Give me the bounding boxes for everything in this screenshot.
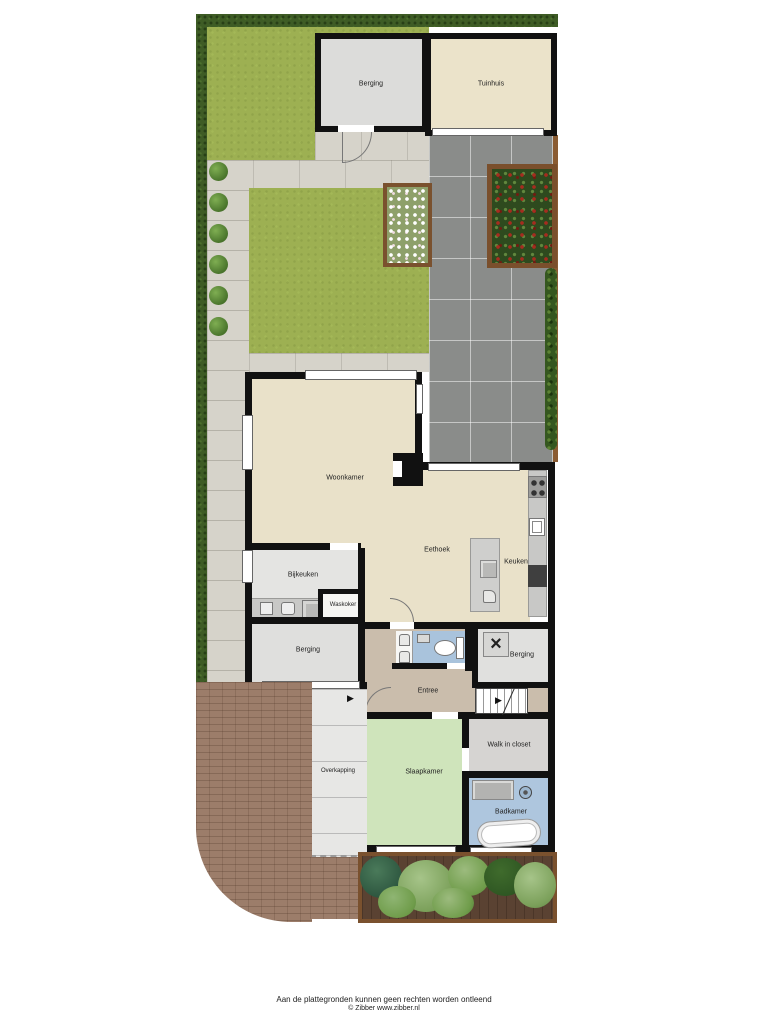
label-keuken: Keuken [504, 559, 528, 566]
window-woonkamer-top [305, 370, 417, 380]
boiler-icon: × [483, 632, 509, 657]
wc-sink-icon [417, 634, 430, 643]
shed-door-opening [338, 125, 374, 132]
vanity-double-sink [472, 780, 514, 800]
window-bijkeuken-left [242, 550, 253, 583]
stairs-direction-arrow-icon: ▶ [495, 696, 502, 705]
label-waskoker: Waskoker [330, 602, 356, 608]
floor-entree-stair-side [528, 688, 548, 712]
bush [209, 255, 228, 274]
planter-red-flowers [487, 164, 557, 268]
hedge-right [545, 268, 557, 450]
label-overkapping: Overkapping [321, 768, 355, 774]
label-badkamer: Badkamer [495, 809, 527, 816]
shrub [432, 888, 474, 918]
label-eethoek: Eethoek [424, 547, 450, 554]
floor-slaapkamer [365, 719, 462, 845]
bush [209, 224, 228, 243]
door-gap-bijkeuken [330, 543, 358, 550]
door-gap-closet [462, 748, 469, 771]
wall [548, 462, 555, 855]
fridge-icon [528, 565, 547, 587]
island-tap-icon [483, 590, 496, 603]
window-eethoek-slider [428, 463, 520, 471]
floorplan-canvas: ▶ ▶ × Berging Tuinhuis Woonkamer Eethoek… [0, 0, 768, 1024]
tuinhuis-window [432, 128, 544, 136]
bathtub [476, 818, 542, 849]
shrub [378, 886, 416, 918]
label-tuinhuis: Tuinhuis [478, 81, 504, 88]
wall [318, 589, 323, 622]
dryer-icon [281, 602, 295, 615]
wall [318, 589, 364, 594]
footer-disclaimer: Aan de plattegronden kunnen geen rechten… [0, 995, 768, 1004]
wall [462, 771, 553, 778]
island-sink-icon [480, 560, 497, 578]
toilet-icon [434, 640, 456, 656]
oven-icon [529, 518, 545, 536]
hedge-top [196, 14, 558, 27]
label-bijkeuken: Bijkeuken [288, 572, 318, 579]
chimney-notch [393, 461, 402, 477]
door-gap-wc [447, 663, 465, 669]
door-gap-slaapkamer [432, 712, 458, 719]
wall [358, 622, 555, 629]
door-gap-eethoek-entree [390, 622, 414, 629]
wall [251, 617, 361, 624]
shower-head-icon [519, 786, 532, 799]
label-berging-right: Berging [510, 652, 534, 659]
hob-icon [528, 476, 547, 498]
washer-icon [260, 602, 273, 615]
label-walk-in-closet: Walk in closet [488, 742, 531, 749]
driveway-lower [310, 857, 362, 919]
bush [209, 317, 228, 336]
driveway [196, 682, 312, 922]
bush [209, 193, 228, 212]
window-woonkamer-left [242, 415, 253, 470]
bush [209, 162, 228, 181]
planter-white-flowers [383, 183, 432, 267]
label-slaapkamer: Slaapkamer [405, 769, 442, 776]
bush [209, 286, 228, 305]
shed-door-leaf [342, 132, 343, 163]
window-woonkamer-right [416, 384, 423, 414]
shrub [514, 862, 556, 908]
label-woonkamer: Woonkamer [326, 475, 364, 482]
cabinet-shelf-icon [399, 634, 410, 646]
label-berging-left: Berging [296, 647, 320, 654]
hedge-left [196, 14, 207, 682]
wall [472, 622, 478, 688]
cabinet-shelf-icon [399, 651, 410, 663]
toilet-tank [456, 637, 464, 659]
label-entree: Entree [418, 688, 439, 695]
footer-copyright: © Zibber www.zibber.nl [0, 1005, 768, 1012]
label-berging-shed: Berging [359, 81, 383, 88]
entry-arrow-icon: ▶ [347, 694, 354, 703]
wall [462, 712, 469, 852]
